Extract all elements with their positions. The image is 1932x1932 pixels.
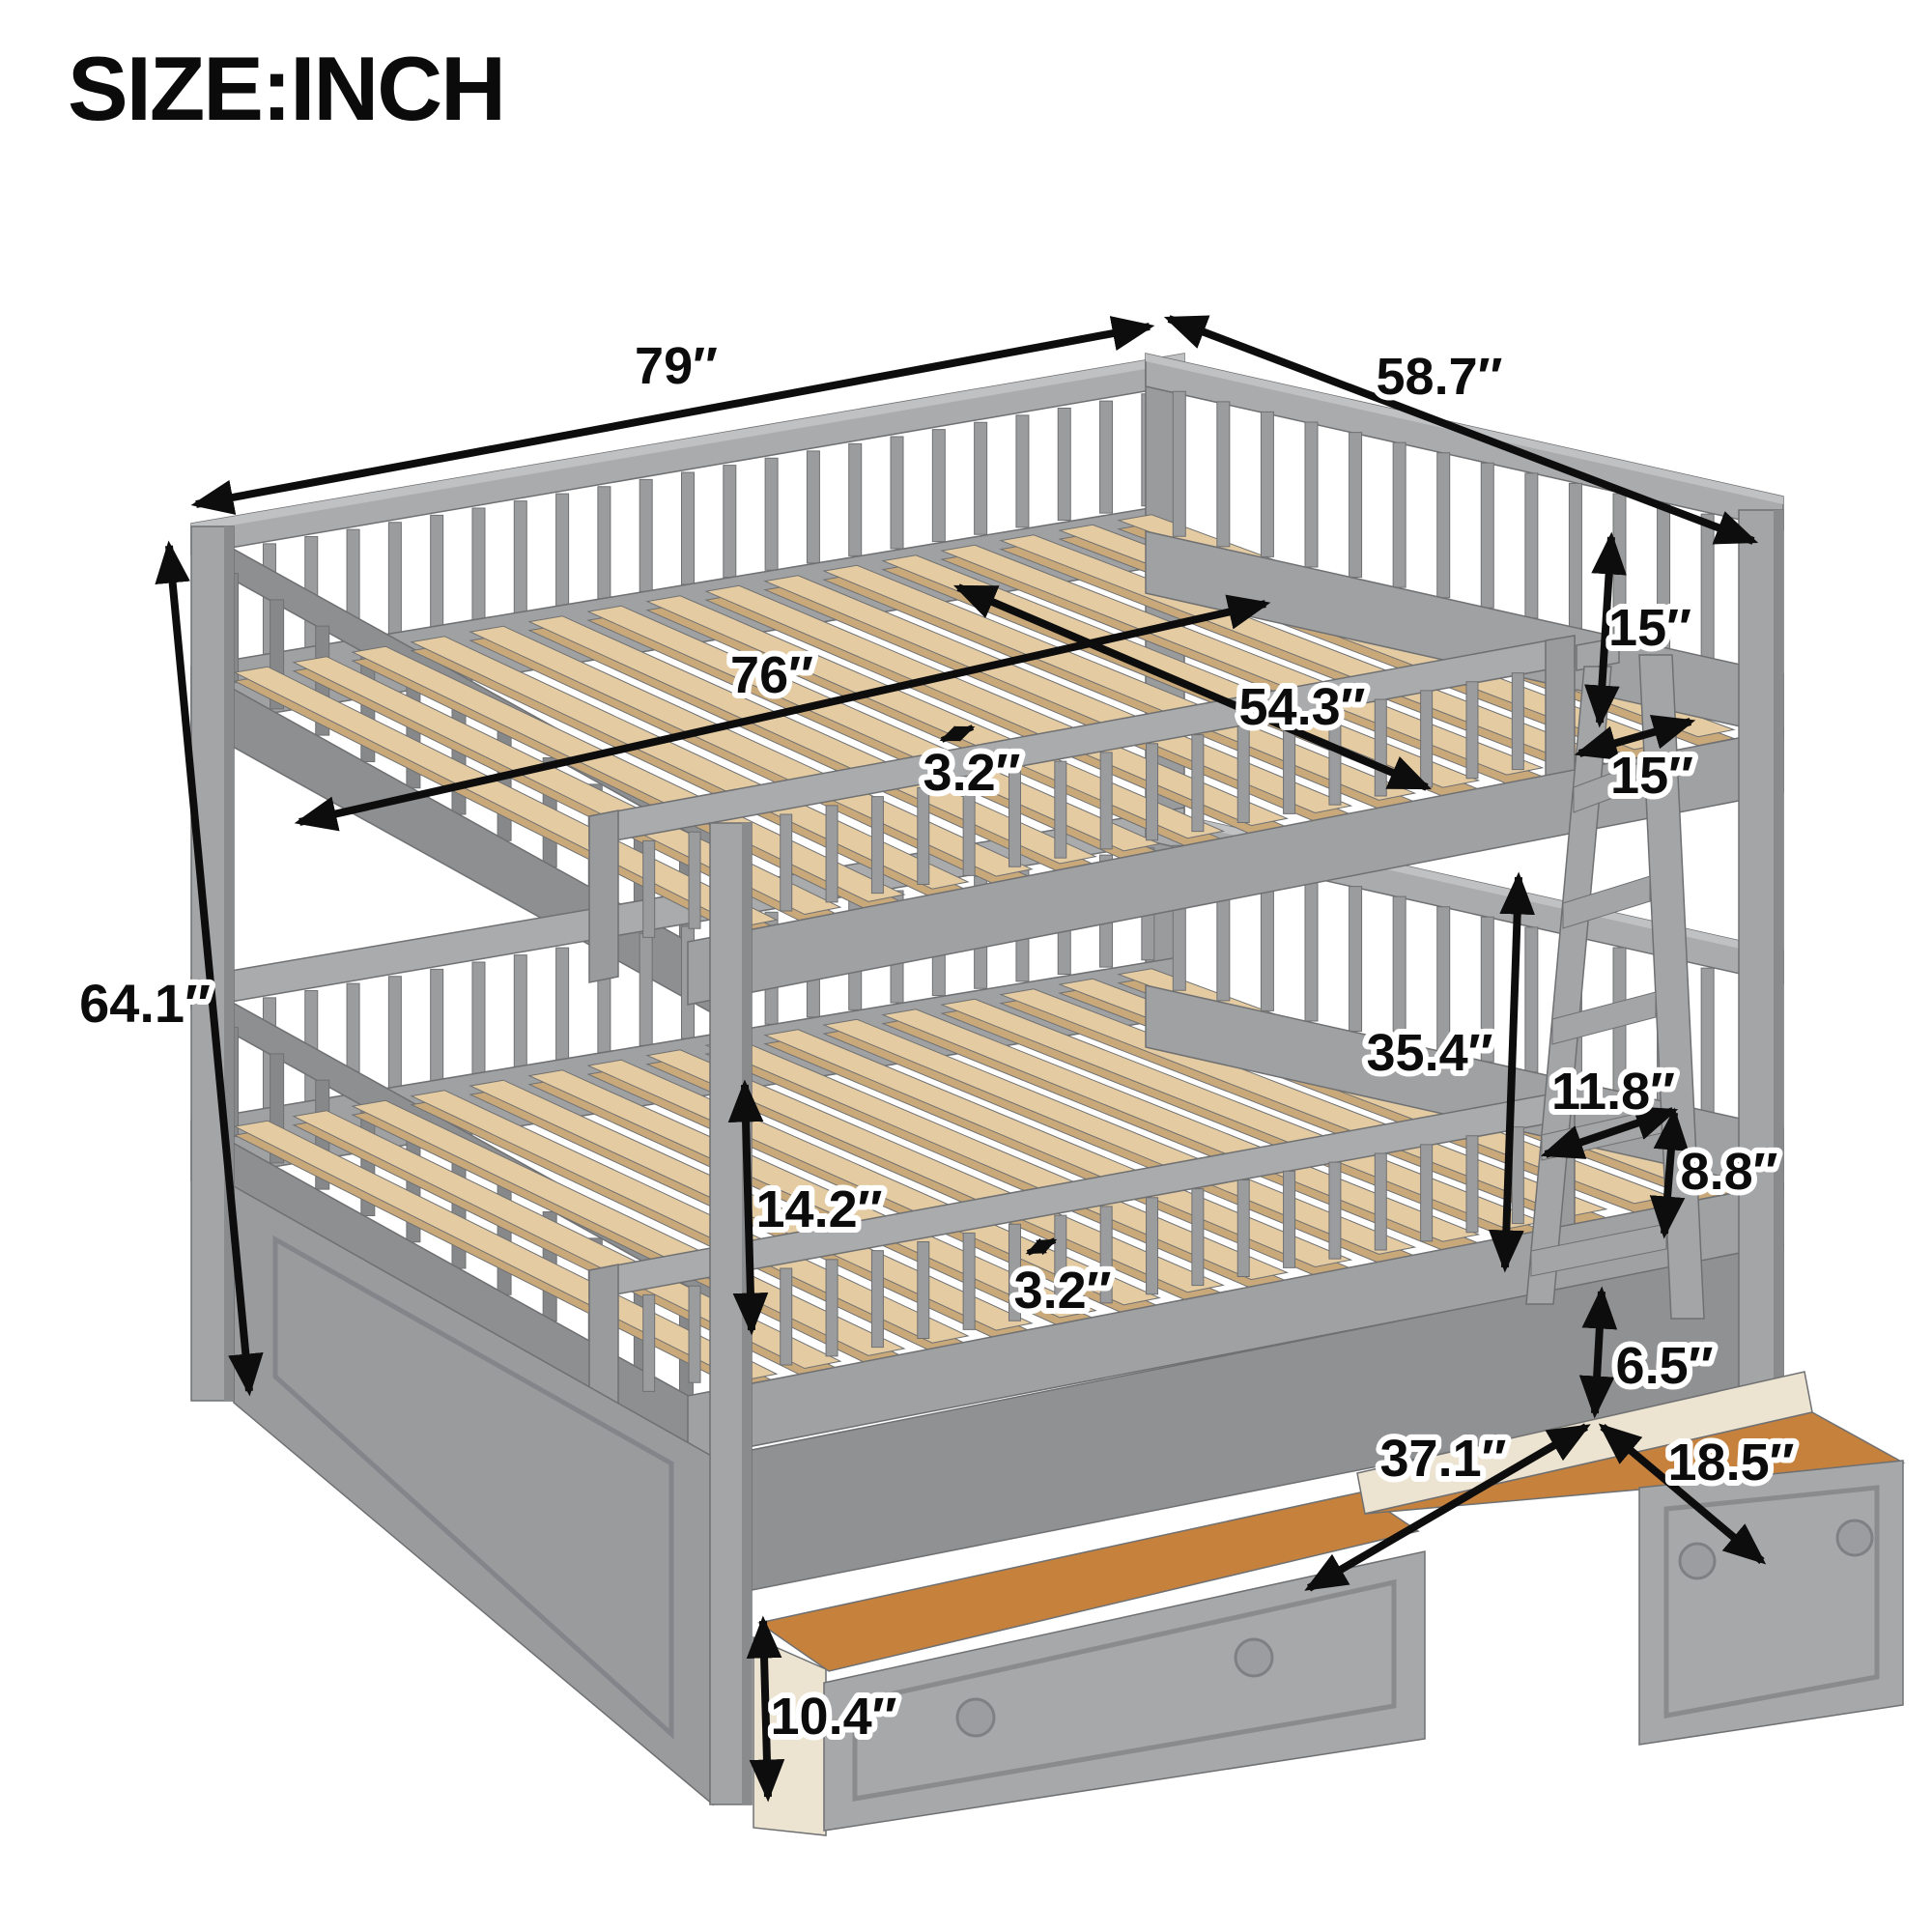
- spindle: [689, 1286, 700, 1382]
- spindle: [1237, 725, 1249, 822]
- bunk-bed-illustration: 79″ 58.7″ 76″ 54.3″ 3.2″ 15″ 15″ 64.1″ 3…: [0, 0, 1932, 1932]
- spindle: [826, 1260, 838, 1356]
- spindle: [689, 832, 700, 928]
- spindle: [807, 451, 819, 563]
- dim-label-ladder-opening: 15″: [1610, 747, 1693, 805]
- spindle: [1525, 473, 1538, 618]
- dim-label-ladder-step-width: 11.8″: [1551, 1063, 1675, 1121]
- spindle: [765, 458, 778, 570]
- spindle: [1512, 1127, 1523, 1224]
- dim-label-overall-width: 58.7″: [1377, 348, 1503, 406]
- spindle: [918, 788, 929, 885]
- spindle: [1237, 1179, 1249, 1276]
- dim-label-bunk-clearance: 35.4″: [1367, 1024, 1493, 1082]
- spindle: [932, 430, 945, 542]
- spindle: [1100, 753, 1112, 849]
- dim-label-drawer-clearance: 6.5″: [1616, 1337, 1714, 1395]
- spindle: [1350, 887, 1362, 1032]
- spindle: [431, 969, 443, 1081]
- spindle: [431, 515, 443, 627]
- spindle: [871, 1251, 883, 1348]
- spindle: [1147, 744, 1158, 840]
- spindle: [1305, 422, 1318, 567]
- spindle: [1512, 673, 1523, 770]
- spindle: [1329, 1162, 1341, 1259]
- spindle: [1437, 453, 1450, 598]
- dim-arrow-drawer-height: [763, 1621, 768, 1797]
- spindle: [1058, 408, 1070, 520]
- spindle: [514, 501, 526, 613]
- spindle: [1055, 761, 1066, 858]
- dim-label-slat-gap-bottom: 3.2″: [1014, 1262, 1112, 1320]
- spindle: [1466, 682, 1478, 779]
- dim-label-guardrail-height: 15″: [1608, 599, 1691, 657]
- drawer-front: [1639, 1461, 1903, 1745]
- spindle: [1393, 896, 1406, 1041]
- spindle: [1284, 1171, 1295, 1267]
- dim-label-slat-gap-top: 3.2″: [923, 744, 1021, 802]
- spindle: [1393, 442, 1406, 587]
- dim-label-rung-spacing: 8.8″: [1681, 1143, 1778, 1201]
- spindle: [781, 814, 792, 911]
- spindle: [472, 508, 485, 620]
- spindle: [1466, 1136, 1478, 1233]
- spindle: [918, 1242, 929, 1339]
- spindle: [849, 443, 862, 555]
- dim-label-interior-width: 54.3″: [1239, 678, 1366, 736]
- drawer-knob: [1837, 1520, 1872, 1555]
- product-dimension-diagram: SIZE:INCH: [0, 0, 1932, 1932]
- spindle: [1173, 391, 1185, 536]
- spindle: [388, 523, 401, 635]
- spindle: [871, 797, 883, 894]
- spindle: [1147, 1198, 1158, 1294]
- spindle: [891, 437, 903, 549]
- spindle: [472, 962, 485, 1074]
- spindle: [1192, 735, 1204, 832]
- spindle: [556, 494, 569, 606]
- spindle: [1192, 1189, 1204, 1286]
- spindle: [1305, 876, 1318, 1021]
- spindle: [724, 466, 736, 578]
- dim-label-lower-rail-height: 14.2″: [756, 1180, 883, 1238]
- spindle: [1350, 433, 1362, 578]
- spindle: [1261, 412, 1273, 556]
- spindle: [1701, 968, 1714, 1113]
- dim-label-drawer-height: 10.4″: [771, 1688, 897, 1746]
- spindle: [643, 1294, 655, 1391]
- spindle: [1375, 1153, 1386, 1250]
- spindle: [1569, 483, 1581, 628]
- spindle: [388, 977, 401, 1089]
- dim-label-overall-length: 79″: [635, 337, 718, 395]
- spindle: [826, 806, 838, 902]
- spindle: [1421, 1145, 1433, 1241]
- spindle: [1375, 699, 1386, 796]
- spindle: [1481, 463, 1493, 608]
- spindle: [1016, 415, 1029, 527]
- spindle: [598, 487, 611, 599]
- bed-post-right: [1739, 510, 1783, 1399]
- spindle: [639, 479, 652, 591]
- drawer-knob: [1236, 1639, 1272, 1676]
- spindle: [643, 840, 655, 937]
- spindle: [556, 948, 569, 1060]
- spindle: [1701, 514, 1714, 659]
- dim-label-drawer-length: 37.1″: [1380, 1430, 1507, 1488]
- spindle: [1525, 927, 1538, 1072]
- spindle: [963, 1233, 975, 1329]
- spindle: [639, 933, 652, 1045]
- dim-label-drawer-depth: 18.5″: [1668, 1434, 1795, 1492]
- dim-label-overall-height: 64.1″: [79, 973, 211, 1034]
- spindle: [781, 1268, 792, 1365]
- dim-label-interior-length: 76″: [730, 646, 813, 704]
- spindle: [1100, 401, 1113, 513]
- spindle: [514, 955, 526, 1067]
- spindle: [1217, 402, 1230, 547]
- spindle: [682, 472, 695, 584]
- spindle: [1421, 691, 1433, 787]
- drawer-knob: [957, 1699, 994, 1736]
- spindle: [975, 422, 987, 534]
- bed-post-front: [710, 823, 752, 1804]
- drawer-knob: [1680, 1544, 1715, 1578]
